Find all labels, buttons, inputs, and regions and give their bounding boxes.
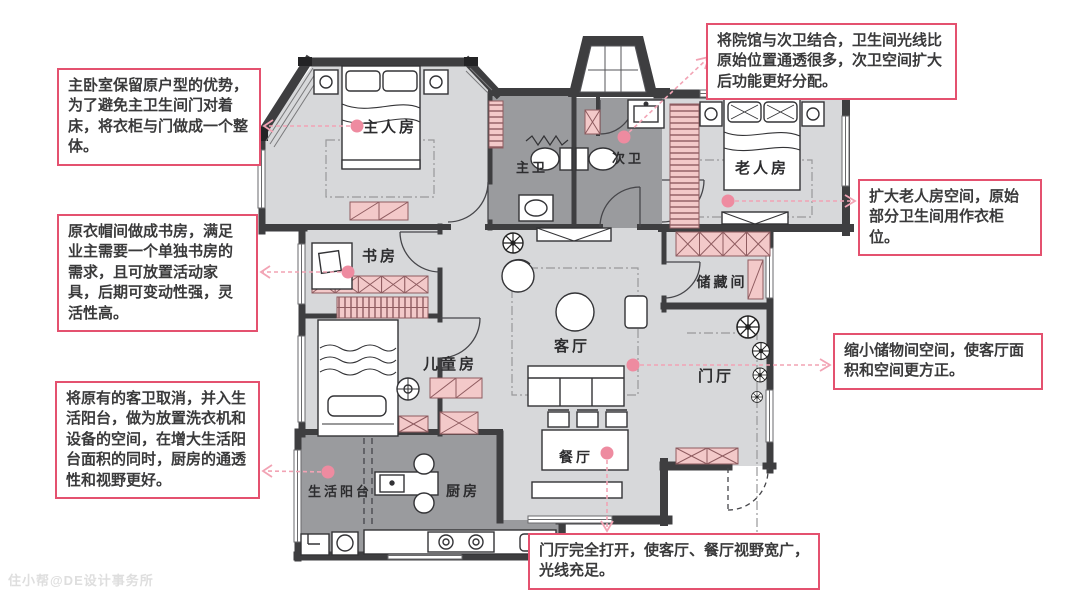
second-bath-cabinet [585, 110, 600, 134]
study-shelf [337, 297, 428, 318]
storage-wardrobe-row [676, 232, 770, 256]
bay-window [568, 36, 658, 97]
plant-icon [753, 343, 770, 360]
elder-wardrobe [670, 104, 699, 228]
annotation-box-study: 原衣帽间做成书房，满足业主需要一个单独书房的需求，且可放置活动家具，后期可变动性… [57, 214, 258, 332]
kids-fan-stool [397, 378, 419, 400]
marker-dot [322, 466, 335, 479]
kids-bed [318, 320, 398, 436]
marker-dot [722, 195, 735, 208]
marker-dot [618, 131, 631, 144]
annotation-box-storage: 缩小储物间空间，使客厅面积和空间更方正。 [833, 333, 1043, 390]
side-table [625, 296, 647, 328]
annotation-box-foyer: 门厅完全打开，使客厅、餐厅视野宽广，光线充足。 [528, 533, 820, 590]
tv-console [537, 228, 611, 241]
label-living-room: 客厅 [553, 337, 590, 355]
label-second-bath: 次卫 [612, 151, 644, 166]
label-master-bedroom: 主人房 [363, 118, 417, 136]
plant-icon [752, 392, 763, 403]
stove [428, 532, 494, 552]
watermark: 住小帮@DE设计事务所 [8, 570, 154, 589]
master-bath-sink [519, 195, 553, 221]
label-kids-room: 儿童房 [422, 355, 477, 373]
master-bath-cabinet [489, 101, 503, 148]
plant-icon [503, 233, 523, 253]
washing-machine [332, 532, 358, 555]
marker-dot [342, 266, 355, 279]
entry-door [728, 468, 768, 510]
label-study: 书房 [362, 247, 398, 265]
kids-wardrobe [430, 378, 482, 398]
label-foyer: 门厅 [698, 367, 734, 385]
label-master-bath: 主卫 [516, 160, 548, 175]
annotation-box-master: 主卧室保留原户型的优势，为了避免主卫生间门对着床，将衣柜与门做成一个整体。 [57, 68, 261, 166]
floorplan-page: 主人房 主卫 次卫 老人房 书房 储藏间 客厅 门厅 儿童房 生活阳台 厨房 餐… [0, 0, 1080, 608]
elder-tv-console [722, 212, 788, 224]
label-elder-room: 老人房 [734, 159, 789, 177]
annotation-box-elder: 扩大老人房空间，原始部分卫生间用作衣柜位。 [858, 179, 1042, 256]
second-bath-toilet [576, 148, 617, 170]
storage-shelf [748, 260, 763, 299]
marker-dot [601, 447, 614, 460]
annotation-box-balcony: 将原有的客卫取消，并入生活阳台，做为放置洗衣机和设备的空间，在增大生活阳台面积的… [55, 381, 260, 499]
sofa [528, 366, 624, 406]
vanity-basin [628, 100, 664, 128]
label-storage: 储藏间 [696, 274, 748, 291]
marker-dot [627, 359, 640, 372]
label-life-balcony: 生活阳台 [308, 484, 372, 499]
label-kitchen: 厨房 [446, 483, 480, 500]
marker-dot [351, 120, 364, 133]
label-dining-room: 餐厅 [558, 449, 593, 466]
master-bed-bench [350, 202, 408, 220]
plant-icon [737, 316, 759, 338]
coffee-table [556, 293, 594, 331]
shoe-cabinet [676, 448, 738, 464]
balcony-sink [301, 534, 329, 555]
plant-icon [753, 368, 767, 382]
annotation-box-second-bath: 将院馆与次卫结合，卫生间光线比原始位置通透很多，次卫空间扩大后功能更好分配。 [706, 23, 957, 100]
